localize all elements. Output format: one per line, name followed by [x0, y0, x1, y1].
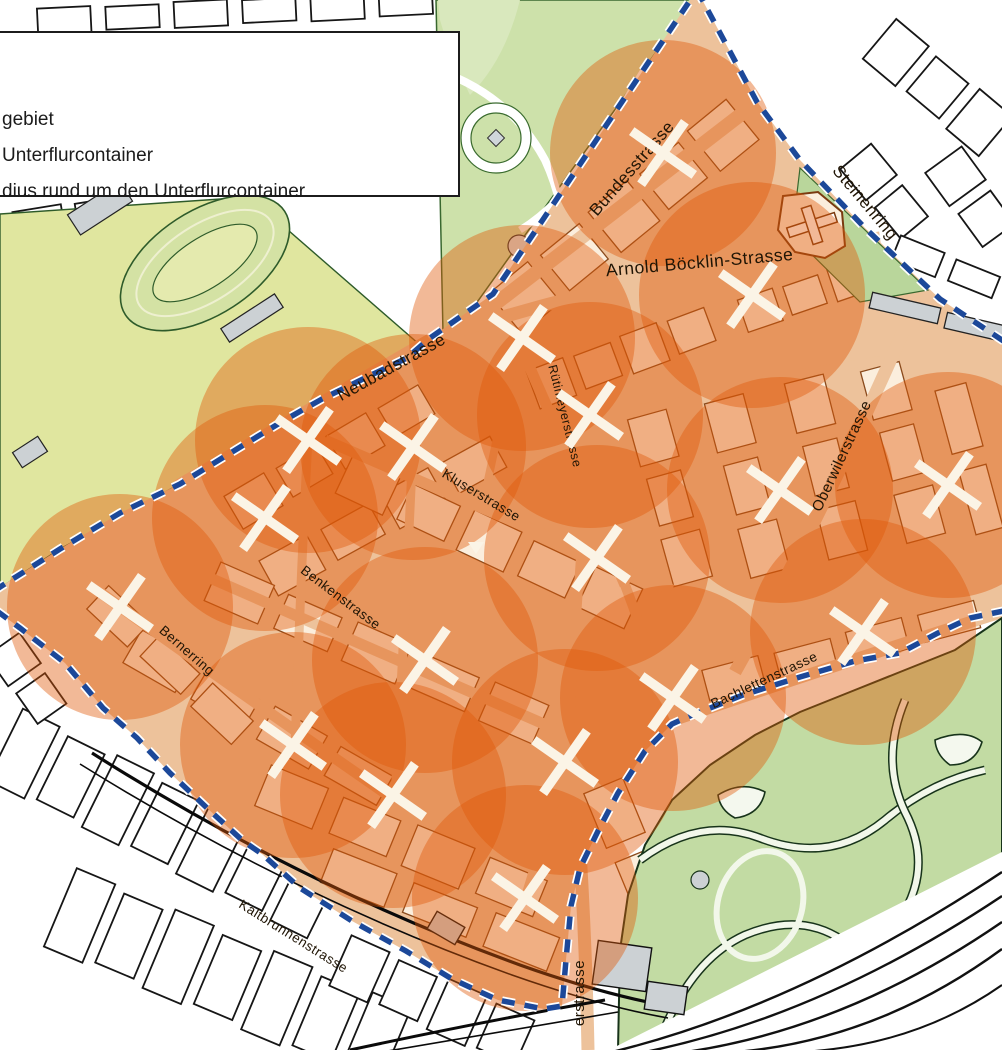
building [379, 0, 433, 16]
legend-line-container: Unterflurcontainer [2, 145, 153, 167]
building [242, 0, 296, 23]
legend-line-pilot-area: gebiet [2, 109, 54, 131]
map-stage: BundesstrasseArnold Böcklin-StrasseStein… [0, 0, 1002, 1050]
building [105, 4, 159, 29]
building [174, 0, 229, 28]
street-label: erstrasse [571, 960, 588, 1026]
legend-line-radius: dius rund um den Unterflurcontainer [2, 181, 305, 203]
building [948, 259, 1000, 298]
legend: gebiet Unterflurcontainer dius rund um d… [0, 31, 460, 197]
building [907, 56, 969, 118]
building [310, 0, 365, 21]
building [958, 191, 1002, 247]
